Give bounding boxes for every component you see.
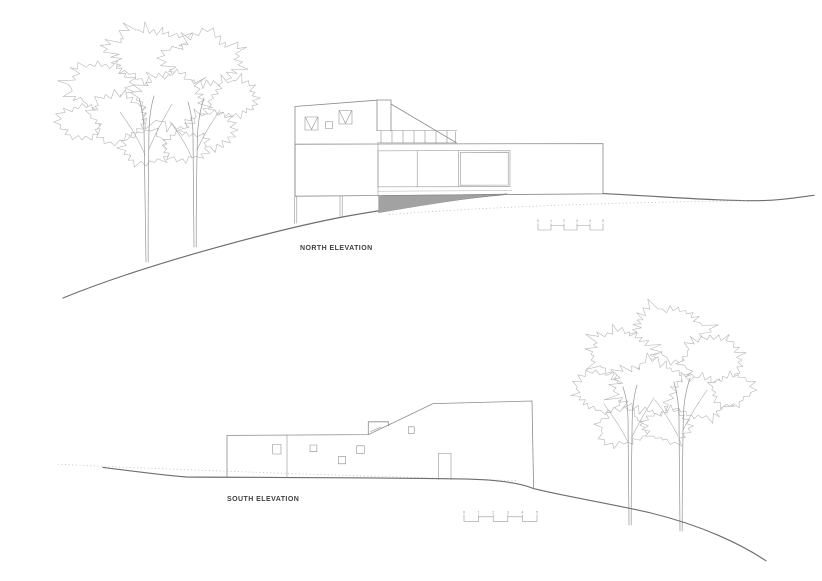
tree-canopy-north: [54, 22, 261, 168]
scale-tick-label: 5: [602, 219, 604, 223]
scale-tick-label: 0: [463, 511, 465, 515]
drawing-sheet: 0 1 2 3 4 5 NORTH ELEVATION: [0, 0, 822, 581]
stair-diagonal: [391, 104, 457, 143]
scale-tick-label: 1: [478, 511, 480, 515]
scale-bar-south-shape: [464, 515, 537, 522]
scale-tick-label: 2: [563, 219, 565, 223]
deck-edge-line: [378, 191, 512, 192]
south-elevation-drawing: 0 1 2 3 4 5 SOUTH ELEVATION: [58, 299, 766, 561]
scale-tick-label: 1: [550, 219, 552, 223]
south-building-outline: [227, 401, 534, 489]
elevations-svg: 0 1 2 3 4 5 NORTH ELEVATION: [0, 0, 822, 581]
south-window-2: [310, 445, 317, 452]
terrain-south: [103, 467, 766, 560]
scale-tick-label: 0: [537, 219, 539, 223]
scale-tick-label: 4: [521, 511, 523, 515]
south-window-5: [408, 427, 414, 434]
south-window-1: [273, 444, 281, 454]
scale-bar-north: 0 1 2 3 4 5: [537, 219, 604, 230]
south-door: [438, 453, 451, 480]
scale-tick-label: 5: [536, 511, 538, 515]
terrain-north-left: [63, 194, 507, 298]
trees-north: [54, 22, 261, 262]
scale-tick-label: 4: [589, 219, 591, 223]
building-south: [227, 401, 534, 489]
framed-window-inner: [460, 152, 508, 185]
trees-south: [571, 299, 757, 531]
scale-bar-north-shape: [538, 223, 603, 230]
upper-window-right: [339, 111, 352, 125]
tree-foliage-blob: [594, 407, 650, 449]
roof-terrace-railing: [377, 131, 457, 143]
upper-window-left: [305, 117, 318, 130]
stair-bulkhead: [377, 100, 391, 131]
south-window-3: [357, 446, 365, 454]
terrain-north-right: [603, 194, 814, 201]
scale-tick-label: 2: [492, 511, 494, 515]
pilotis-columns: [295, 196, 343, 224]
scale-tick-label: 3: [507, 511, 509, 515]
upper-volume-roofline: [295, 100, 377, 196]
building-north: [295, 100, 603, 224]
scale-bar-south: 0 1 2 3 4 5: [463, 511, 538, 522]
main-floor-band: [295, 144, 603, 197]
north-elevation-drawing: 0 1 2 3 4 5 NORTH ELEVATION: [54, 22, 814, 298]
upper-window-small: [326, 122, 333, 129]
scale-tick-label: 3: [576, 219, 578, 223]
north-elevation-label: NORTH ELEVATION: [300, 245, 373, 252]
tree-canopy-south: [571, 299, 757, 449]
south-window-4: [338, 457, 345, 464]
south-elevation-label: SOUTH ELEVATION: [227, 496, 299, 503]
grade-line-dotted-north: [389, 201, 748, 215]
undercroft-shadow: [379, 194, 506, 213]
glazing-strip: [378, 151, 510, 187]
